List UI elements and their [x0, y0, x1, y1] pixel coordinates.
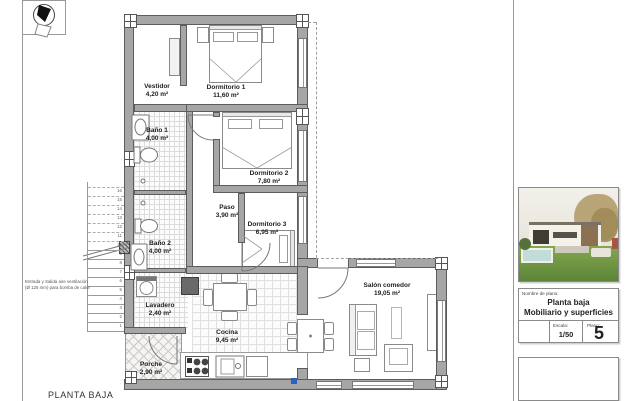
plan-name-label: Nombre de plano:	[522, 291, 559, 296]
stair-step-number: 7	[120, 270, 122, 274]
room-name: Paso	[216, 204, 238, 212]
stair-step-number: 4	[120, 297, 122, 301]
stair-step-number: 14	[117, 207, 122, 211]
room-name: Porche	[140, 361, 162, 369]
stair-step: 15	[88, 196, 124, 205]
photo-car	[612, 238, 618, 249]
utility-symbol-blue	[291, 378, 297, 384]
room-label-cocina: Cocina 9,45 m²	[216, 329, 238, 345]
stair-step-number: 8	[120, 261, 122, 265]
title-block: Nombre de plano: Planta baja Mobiliario …	[518, 288, 619, 343]
room-label-porche: Porche 2,90 m²	[140, 361, 162, 377]
stair-step: 9	[88, 250, 124, 259]
photo-house-window	[553, 232, 577, 238]
photo-terrace	[555, 246, 589, 253]
stair-step-number: 1	[120, 324, 122, 328]
sheet-number-value: 5	[594, 323, 628, 343]
room-label-lavadero: Lavadero 2,40 m²	[146, 302, 175, 318]
room-name: Salón comedor	[364, 282, 411, 290]
room-area: 2,90 m²	[140, 369, 162, 377]
north-arrow-icon	[34, 5, 55, 38]
plan-name-line2: Mobiliario y superficies	[519, 308, 618, 318]
photo-bush	[519, 238, 531, 250]
stair-step: 13	[88, 214, 124, 223]
ventilation-note: Entrada y Salida aire ventilación (Ø 125…	[25, 279, 105, 290]
room-area: 2,40 m²	[146, 310, 175, 318]
stair-step: 8	[88, 259, 124, 268]
floor-plan-sheet: 12345678910111213141516 Vestidor 4,20 m²…	[0, 0, 630, 401]
stair-step-number: 12	[117, 225, 122, 229]
ventilation-note-line2: (Ø 125 mm) para bomba de calor	[25, 285, 105, 291]
stair-step-number: 15	[117, 198, 122, 202]
sheet-number-cell: Plano: 5	[584, 321, 618, 343]
title-block-lower-box	[518, 357, 619, 401]
stair-step-number: 2	[120, 315, 122, 319]
room-area: 11,60 m²	[207, 92, 246, 100]
staircase: 12345678910111213141516	[87, 182, 124, 332]
room-label-vestidor: Vestidor 4,20 m²	[144, 83, 170, 99]
room-label-dormitorio3: Dormitorio 3 6,95 m²	[248, 221, 287, 237]
plan-name: Planta baja Mobiliario y superficies	[519, 298, 618, 317]
plan-name-line1: Planta baja	[519, 298, 618, 308]
room-area: 7,80 m²	[250, 178, 289, 186]
stair-step: 10	[88, 241, 124, 250]
staircase-steps: 12345678910111213141516	[88, 182, 124, 331]
room-name: Dormitorio 3	[248, 221, 287, 229]
stair-step: 1	[88, 322, 124, 331]
stair-step-number: 16	[117, 189, 122, 193]
room-area: 4,20 m²	[144, 91, 170, 99]
stair-step: 4	[88, 295, 124, 304]
photo-pool	[521, 248, 553, 263]
stair-step-number: 9	[120, 252, 122, 256]
room-area: 4,00 m²	[149, 248, 171, 256]
room-label-salon-comedor: Salón comedor 19,05 m²	[364, 282, 411, 298]
room-label-bano1: Baño 1 4,00 m²	[146, 127, 168, 143]
stair-step: 2	[88, 313, 124, 322]
scale-value: 1/50	[550, 330, 582, 339]
stair-step: 14	[88, 205, 124, 214]
plan-footer-title: PLANTA BAJA	[48, 390, 113, 400]
house-render-photo	[518, 187, 619, 282]
room-area: 4,00 m²	[146, 135, 168, 143]
room-area: 3,90 m²	[216, 212, 238, 220]
stair-step: 16	[88, 187, 124, 196]
stair-step: 7	[88, 268, 124, 277]
room-name: Baño 1	[146, 127, 168, 135]
room-area: 6,95 m²	[248, 229, 287, 237]
stair-step: 3	[88, 304, 124, 313]
room-name: Dormitorio 2	[250, 170, 289, 178]
stair-step-number: 13	[117, 216, 122, 220]
room-label-dormitorio2: Dormitorio 2 7,80 m²	[250, 170, 289, 186]
stair-step-number: 5	[120, 288, 122, 292]
room-label-paso: Paso 3,90 m²	[216, 204, 238, 220]
stair-step-number: 11	[117, 234, 122, 238]
room-label-dormitorio1: Dormitorio 1 11,60 m²	[207, 84, 246, 100]
title-block-row: Escala: 1/50 Plano: 5	[519, 320, 618, 342]
room-name: Cocina	[216, 329, 238, 337]
stair-step-number: 6	[120, 279, 122, 283]
room-area: 9,45 m²	[216, 337, 238, 345]
stair-step-number: 3	[120, 306, 122, 310]
scale-label: Escala:	[553, 323, 568, 328]
photo-house-window	[533, 230, 549, 244]
photo-house-stone-wall	[581, 225, 598, 248]
room-label-bano2: Baño 2 4,00 m²	[149, 240, 171, 256]
room-name: Baño 2	[149, 240, 171, 248]
room-name: Dormitorio 1	[207, 84, 246, 92]
title-block-empty-cell	[519, 321, 549, 343]
stair-step: 11	[88, 232, 124, 241]
stair-step: 12	[88, 223, 124, 232]
photo-outdoor-furniture	[591, 248, 611, 257]
room-name: Vestidor	[144, 83, 170, 91]
stair-step-number: 10	[117, 243, 122, 247]
room-area: 19,05 m²	[364, 290, 411, 298]
scale-cell: Escala: 1/50	[549, 321, 583, 343]
room-name: Lavadero	[146, 302, 175, 310]
